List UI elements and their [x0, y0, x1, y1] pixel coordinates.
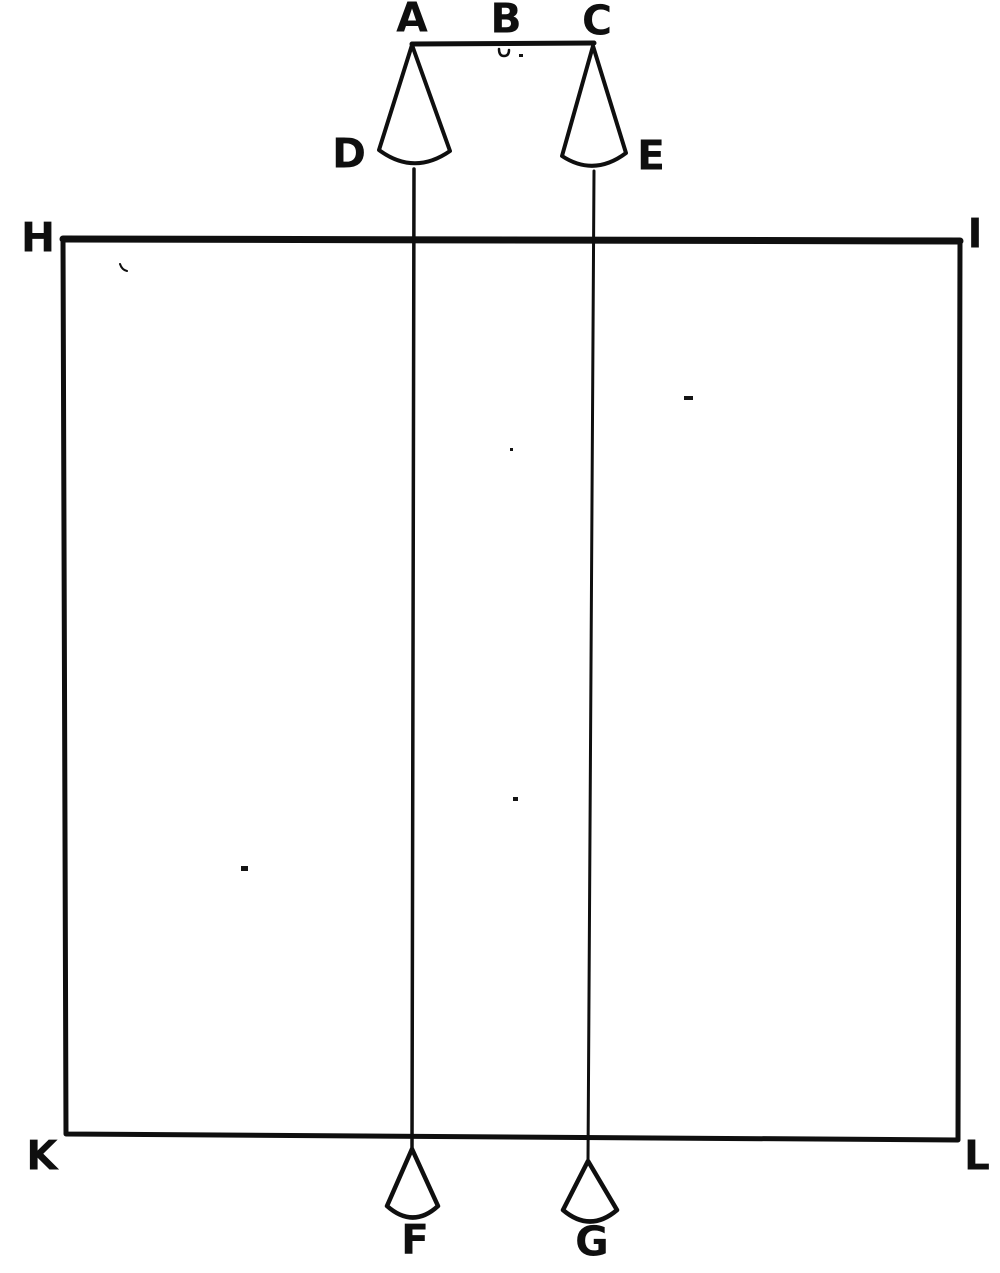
plumb-line-DF — [412, 169, 414, 1149]
enclosure-top-edge — [63, 239, 960, 241]
ink-speck-dot — [513, 797, 518, 801]
label-b: B — [490, 0, 521, 40]
label-c: C — [582, 1, 612, 42]
ink-speck-under-b — [499, 49, 509, 56]
cone-D — [379, 45, 450, 163]
ink-speck-dash — [684, 396, 693, 400]
ink-speck-dot — [241, 866, 248, 871]
label-i: I — [967, 214, 982, 255]
label-k: K — [26, 1136, 58, 1177]
plumb-line-EG — [588, 171, 594, 1161]
cone-E — [562, 46, 626, 166]
label-g: G — [575, 1222, 609, 1263]
label-d: D — [332, 134, 366, 175]
ink-speck-dot — [519, 54, 523, 57]
figure-canvas: A B C D E H I K L F G — [0, 0, 1000, 1273]
ink-specks — [120, 49, 693, 871]
ink-speck-dot — [510, 448, 513, 451]
label-a: A — [396, 0, 428, 39]
label-l: L — [964, 1136, 990, 1177]
plumb-line-diagram — [0, 0, 1000, 1273]
enclosure-outline — [63, 239, 960, 1140]
cone-F — [387, 1149, 438, 1218]
crossbar-AC — [412, 43, 594, 44]
cone-G — [563, 1161, 617, 1222]
label-f: F — [401, 1220, 429, 1261]
ink-speck-near-h — [120, 264, 127, 271]
label-h: H — [21, 218, 55, 259]
label-e: E — [637, 136, 665, 177]
